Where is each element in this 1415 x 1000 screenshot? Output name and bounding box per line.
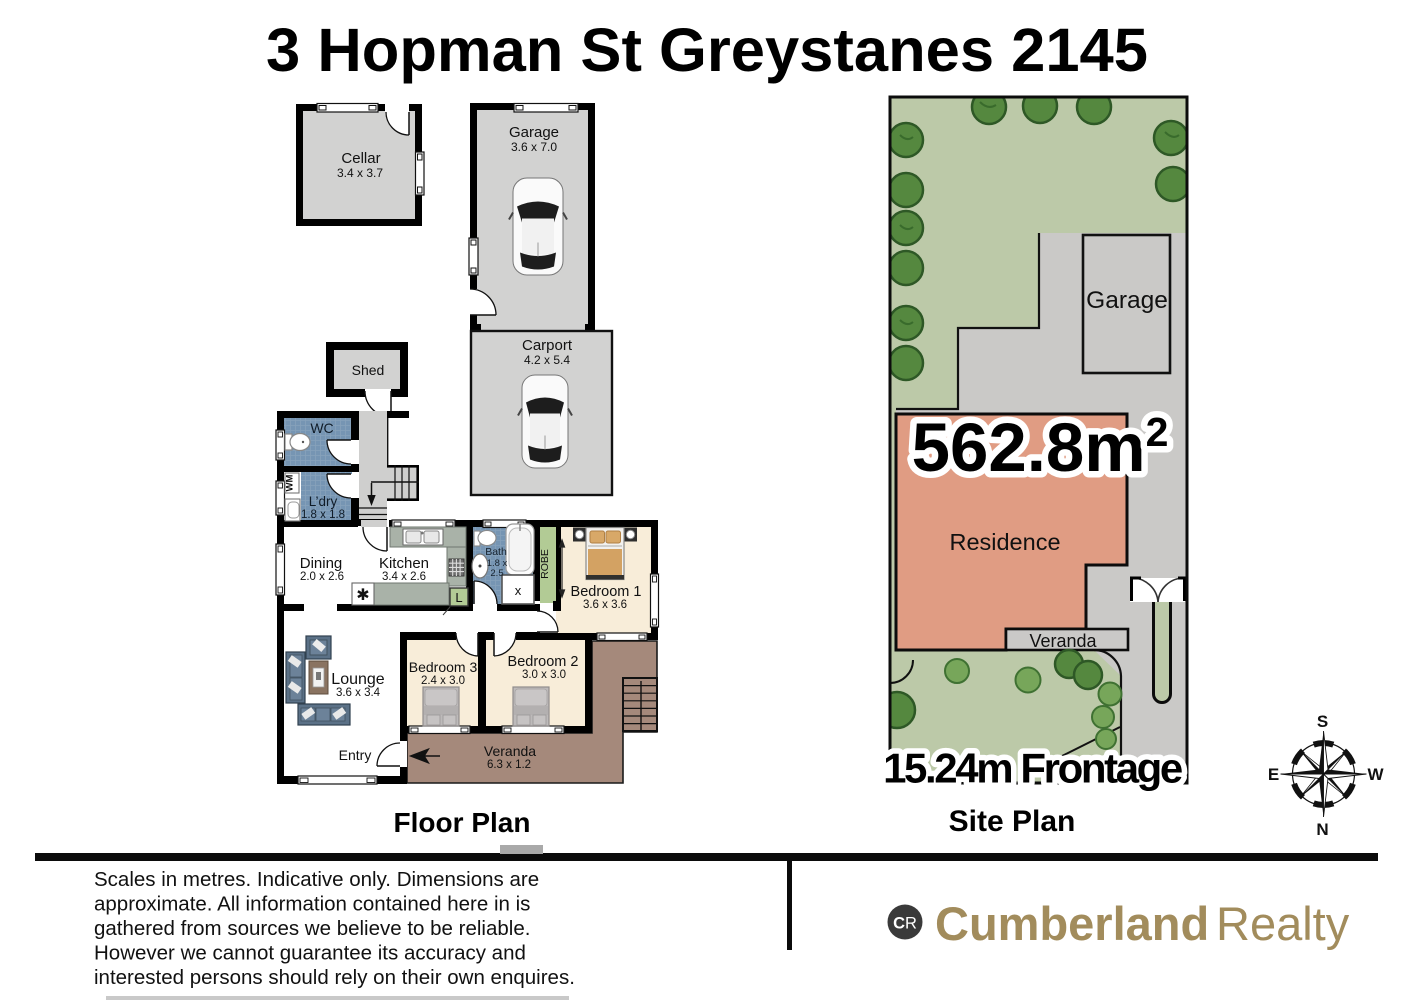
svg-text:W: W	[1367, 765, 1384, 784]
svg-text:Bath: Bath	[485, 546, 507, 558]
svg-text:However we cannot guarantee it: However we cannot guarantee its accuracy…	[94, 942, 526, 965]
svg-text:Site Plan: Site Plan	[949, 805, 1076, 838]
svg-text:3.6 x 3.6: 3.6 x 3.6	[583, 599, 627, 611]
svg-text:15.24m Frontage: 15.24m Frontage	[883, 745, 1182, 792]
svg-text:x: x	[515, 583, 522, 598]
svg-text:approximate. All information c: approximate. All information contained h…	[94, 893, 530, 916]
svg-text:2.5: 2.5	[490, 568, 503, 579]
svg-text:CR: CR	[893, 915, 917, 933]
svg-text:Veranda: Veranda	[484, 743, 536, 759]
svg-text:✱: ✱	[356, 587, 369, 604]
svg-text:L’dry: L’dry	[309, 494, 338, 509]
svg-text:Residence: Residence	[949, 529, 1060, 555]
svg-text:Lounge: Lounge	[331, 671, 384, 688]
svg-text:interested persons should rely: interested persons should rely on their …	[94, 966, 575, 989]
svg-text:Entry: Entry	[339, 747, 372, 763]
svg-text:Cumberland: Cumberland	[935, 897, 1209, 950]
svg-text:N: N	[1316, 820, 1328, 839]
svg-text:S: S	[1317, 712, 1328, 731]
svg-text:Veranda: Veranda	[1029, 631, 1097, 651]
svg-text:Shed: Shed	[352, 362, 385, 378]
svg-text:4.2 x 5.4: 4.2 x 5.4	[524, 353, 570, 367]
svg-text:3.4 x 2.6: 3.4 x 2.6	[382, 571, 426, 583]
svg-text:Dining: Dining	[300, 555, 343, 572]
svg-text:Carport: Carport	[522, 337, 573, 354]
svg-text:2.4 x 3.0: 2.4 x 3.0	[421, 675, 465, 687]
svg-text:Cellar: Cellar	[341, 150, 380, 167]
svg-text:Garage: Garage	[1086, 287, 1168, 314]
svg-text:Garage: Garage	[509, 124, 559, 141]
svg-text:E: E	[1268, 765, 1279, 784]
svg-text:562.8m2: 562.8m2	[912, 409, 1169, 486]
svg-text:Realty: Realty	[1216, 897, 1350, 950]
svg-text:3.6 x 7.0: 3.6 x 7.0	[511, 140, 557, 154]
svg-text:WM: WM	[285, 474, 296, 491]
svg-text:Bedroom 1: Bedroom 1	[571, 584, 642, 600]
svg-text:Scales in metres. Indicative o: Scales in metres. Indicative only. Dimen…	[94, 868, 539, 891]
svg-text:3 Hopman St Greystanes 2145: 3 Hopman St Greystanes 2145	[266, 16, 1148, 85]
svg-text:3.4 x 3.7: 3.4 x 3.7	[337, 166, 383, 180]
svg-text:WC: WC	[310, 420, 333, 436]
svg-text:Bedroom 3: Bedroom 3	[409, 659, 478, 675]
svg-text:Kitchen: Kitchen	[379, 555, 429, 572]
svg-text:gathered from sources we belie: gathered from sources we believe to be r…	[94, 917, 530, 940]
svg-text:Bedroom 2: Bedroom 2	[508, 654, 579, 670]
svg-text:L: L	[455, 590, 462, 605]
svg-text:Floor Plan: Floor Plan	[394, 807, 531, 838]
svg-text:3.0 x 3.0: 3.0 x 3.0	[522, 669, 566, 681]
svg-text:2.0 x 2.6: 2.0 x 2.6	[300, 571, 344, 583]
svg-text:6.3 x 1.2: 6.3 x 1.2	[487, 759, 531, 771]
svg-text:1.8 x 1.8: 1.8 x 1.8	[301, 509, 345, 521]
svg-text:ROBE: ROBE	[539, 549, 551, 579]
svg-text:3.6 x 3.4: 3.6 x 3.4	[336, 687, 381, 699]
